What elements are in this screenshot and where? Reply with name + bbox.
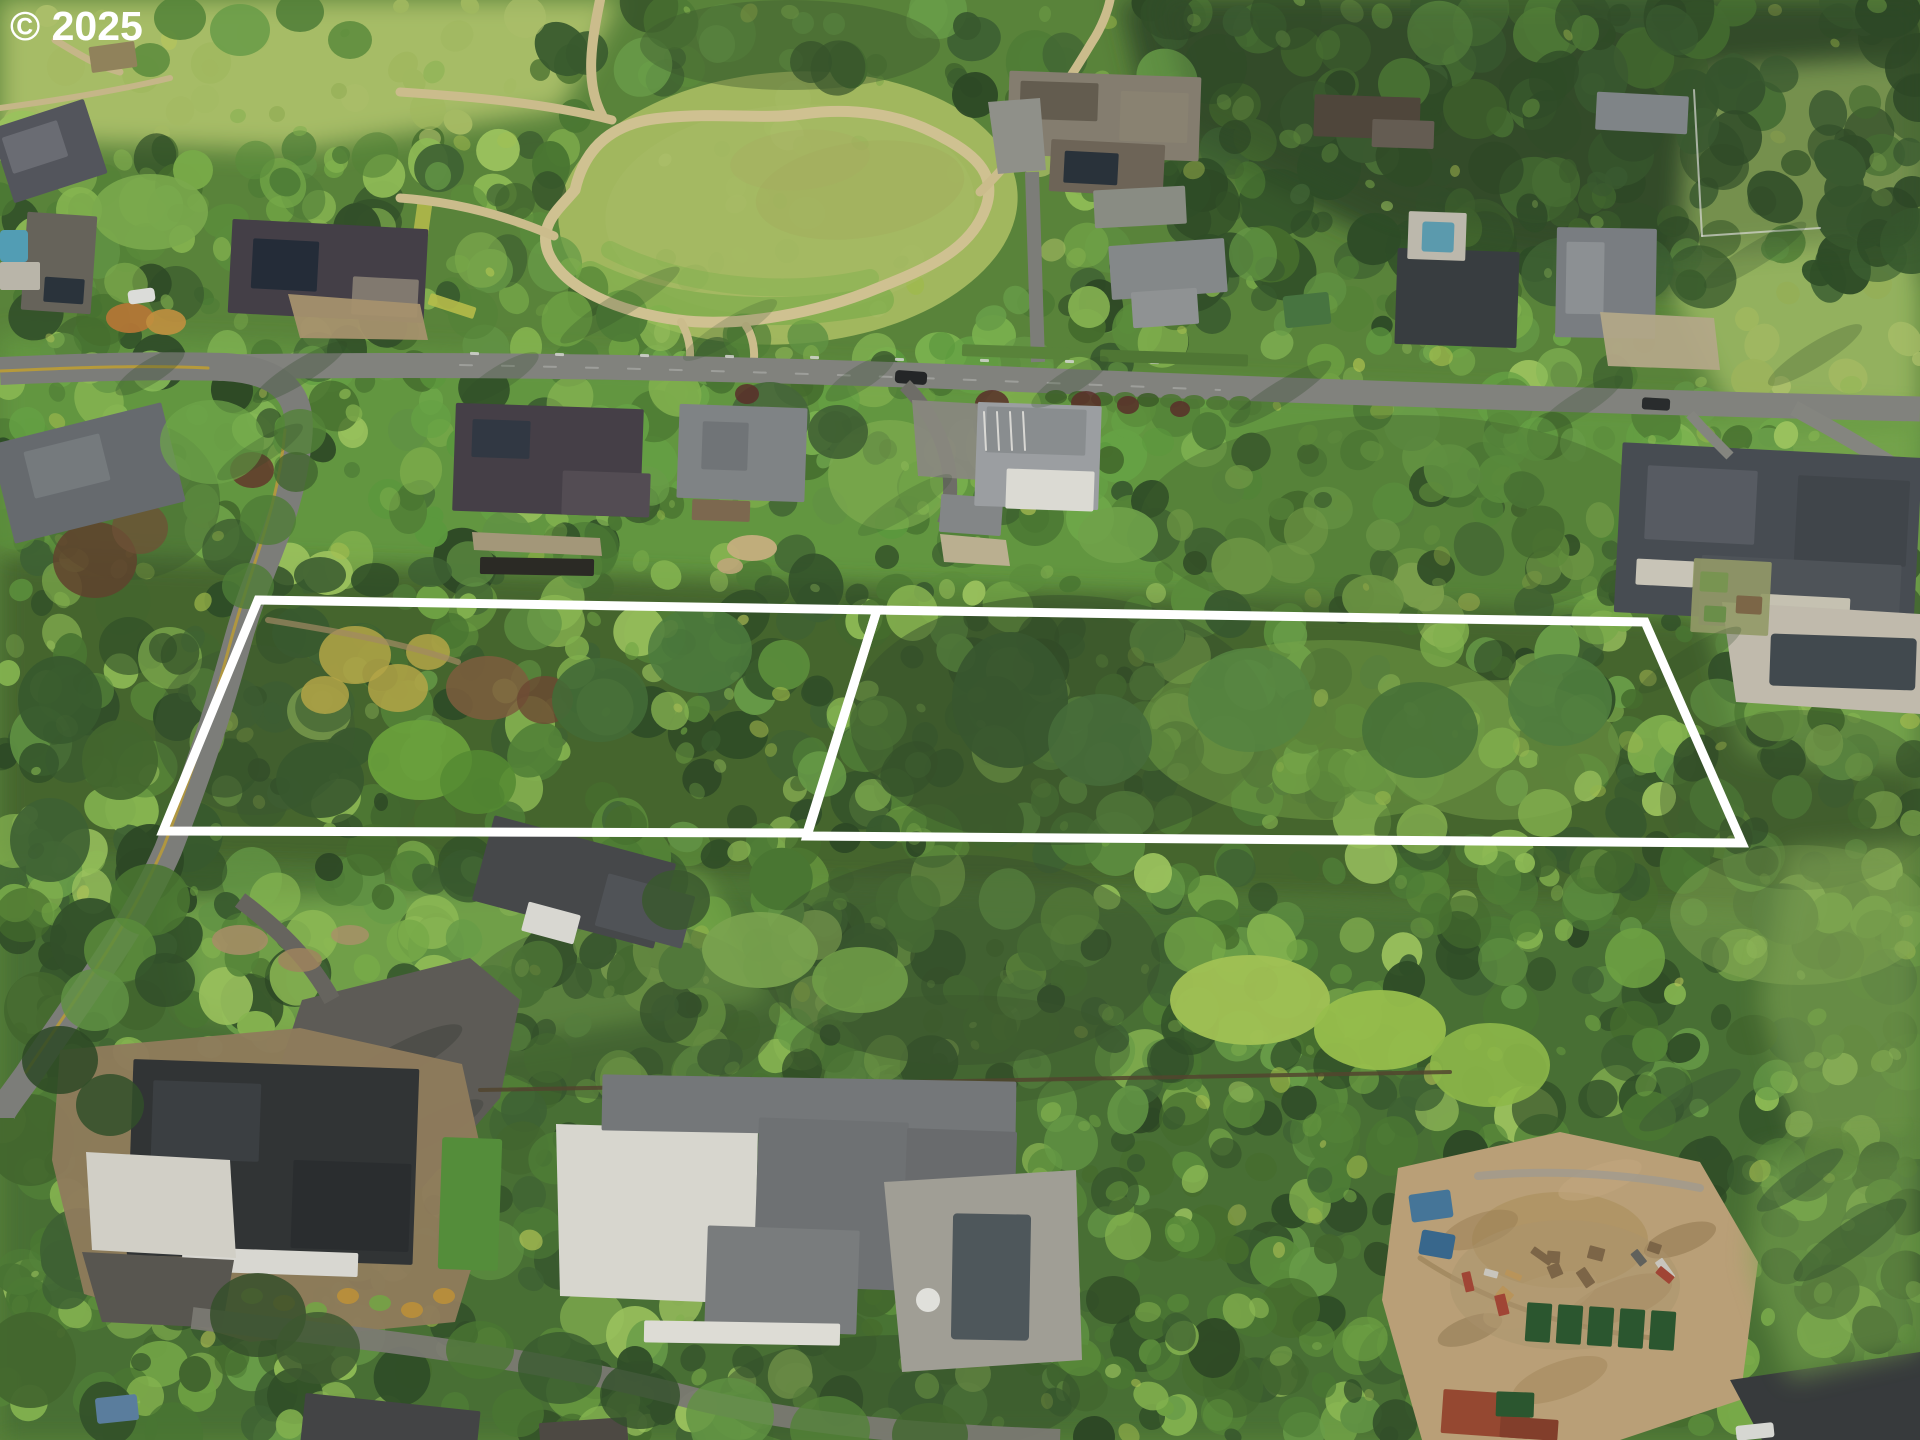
svg-text:© 2025: © 2025 bbox=[10, 3, 143, 49]
